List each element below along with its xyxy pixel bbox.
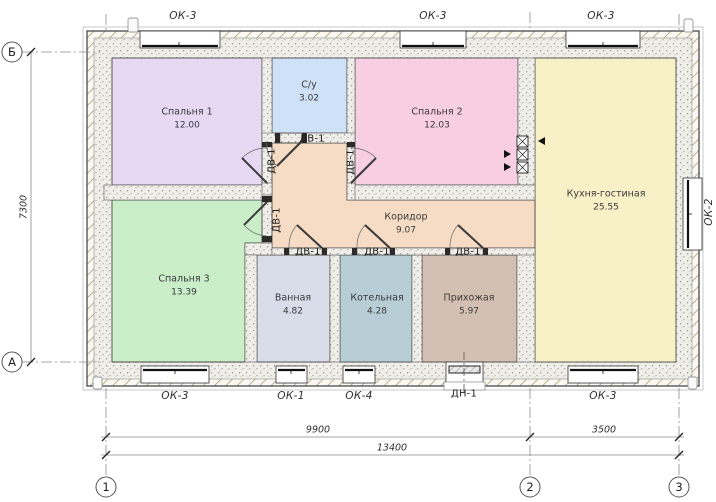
room-label-wc: С/у 3.02 [299,79,319,106]
room-area: 4.82 [275,305,311,318]
room-label-bedroom-2: Спальня 2 12.03 [411,106,462,133]
door-label-wc: ДВ-1 [299,134,324,145]
window-label-ok1-bottom: ОК-1 [277,390,304,402]
room-name: Кухня-гостиная [567,188,646,202]
axis-label-2: 2 [526,480,533,494]
room-area: 4.28 [350,305,403,318]
window-label-ok2-right: ОК-2 [703,198,715,225]
door-label-hallway: ДВ-1 [455,247,480,258]
axis-label-a: А [8,355,16,369]
window-label-ok3-top-2: ОК-3 [419,10,446,22]
room-name: С/у [299,79,319,93]
window-label-ok3-top-1: ОК-3 [169,10,196,22]
door-label-bedroom3: ДВ-1 [272,207,283,232]
room-label-corridor: Коридор 9.07 [384,211,427,238]
room-area: 12.00 [161,119,212,132]
room-name: Прихожая [444,292,495,306]
window-right [683,178,702,250]
window-bottom-1 [141,366,209,383]
room-label-kitchen-living: Кухня-гостиная 25.55 [567,188,646,215]
room-label-hallway: Прихожая 5.97 [444,292,495,319]
window-label-ok3-bottom-1: ОК-3 [161,390,188,402]
floor-plan: Спальня 1 12.00 С/у 3.02 Спальня 2 12.03… [0,0,716,502]
room-label-boiler: Котельная 4.28 [350,292,403,319]
vent-stub-icon [93,377,102,389]
window-bottom-3 [343,366,375,383]
entry-door-label-dn1: ДН-1 [451,389,477,400]
vent-stub-icon [684,19,693,32]
door-label-bedroom1: ДВ-1 [267,148,278,173]
window-bottom-4 [568,366,638,383]
room-name: Спальня 1 [161,106,212,120]
vent-stub-icon [128,18,138,32]
room-name: Спальня 2 [411,106,462,120]
window-top-3 [566,31,640,48]
door-label-bathroom: ДВ-1 [295,247,320,258]
room-label-bedroom-1: Спальня 1 12.00 [161,106,212,133]
room-name: Коридор [384,211,427,225]
door-label-bedroom2: ДВ-1 [346,149,357,174]
window-top-2 [400,31,466,48]
window-label-ok3-bottom-2: ОК-3 [589,390,616,402]
room-name: Спальня 3 [158,273,209,287]
room-area: 5.97 [444,305,495,318]
vent-stub-icon [688,377,697,389]
dimension-height: 7300 [19,195,30,219]
axis-label-1: 1 [102,480,109,494]
room-area: 25.55 [567,201,646,214]
window-bottom-2 [276,366,307,383]
axis-label-3: 3 [675,480,682,494]
room-area: 12.03 [411,119,462,132]
window-label-ok3-top-3: ОК-3 [587,10,614,22]
door-label-boiler: ДВ-1 [364,247,389,258]
room-label-bedroom-3: Спальня 3 13.39 [158,273,209,300]
room-area: 9.07 [384,224,427,237]
room-name: Котельная [350,292,403,306]
room-area: 3.02 [299,92,319,105]
dimension-span-2-3: 3500 [592,425,616,436]
window-label-ok4-bottom: ОК-4 [345,390,372,402]
room-name: Ванная [275,292,311,306]
window-top-1 [140,31,220,48]
axis-label-b: Б [8,45,16,59]
dimension-span-1-2: 9900 [306,425,330,436]
room-label-bathroom: Ванная 4.82 [275,292,311,319]
dimension-total: 13400 [377,443,407,454]
room-area: 13.39 [158,286,209,299]
